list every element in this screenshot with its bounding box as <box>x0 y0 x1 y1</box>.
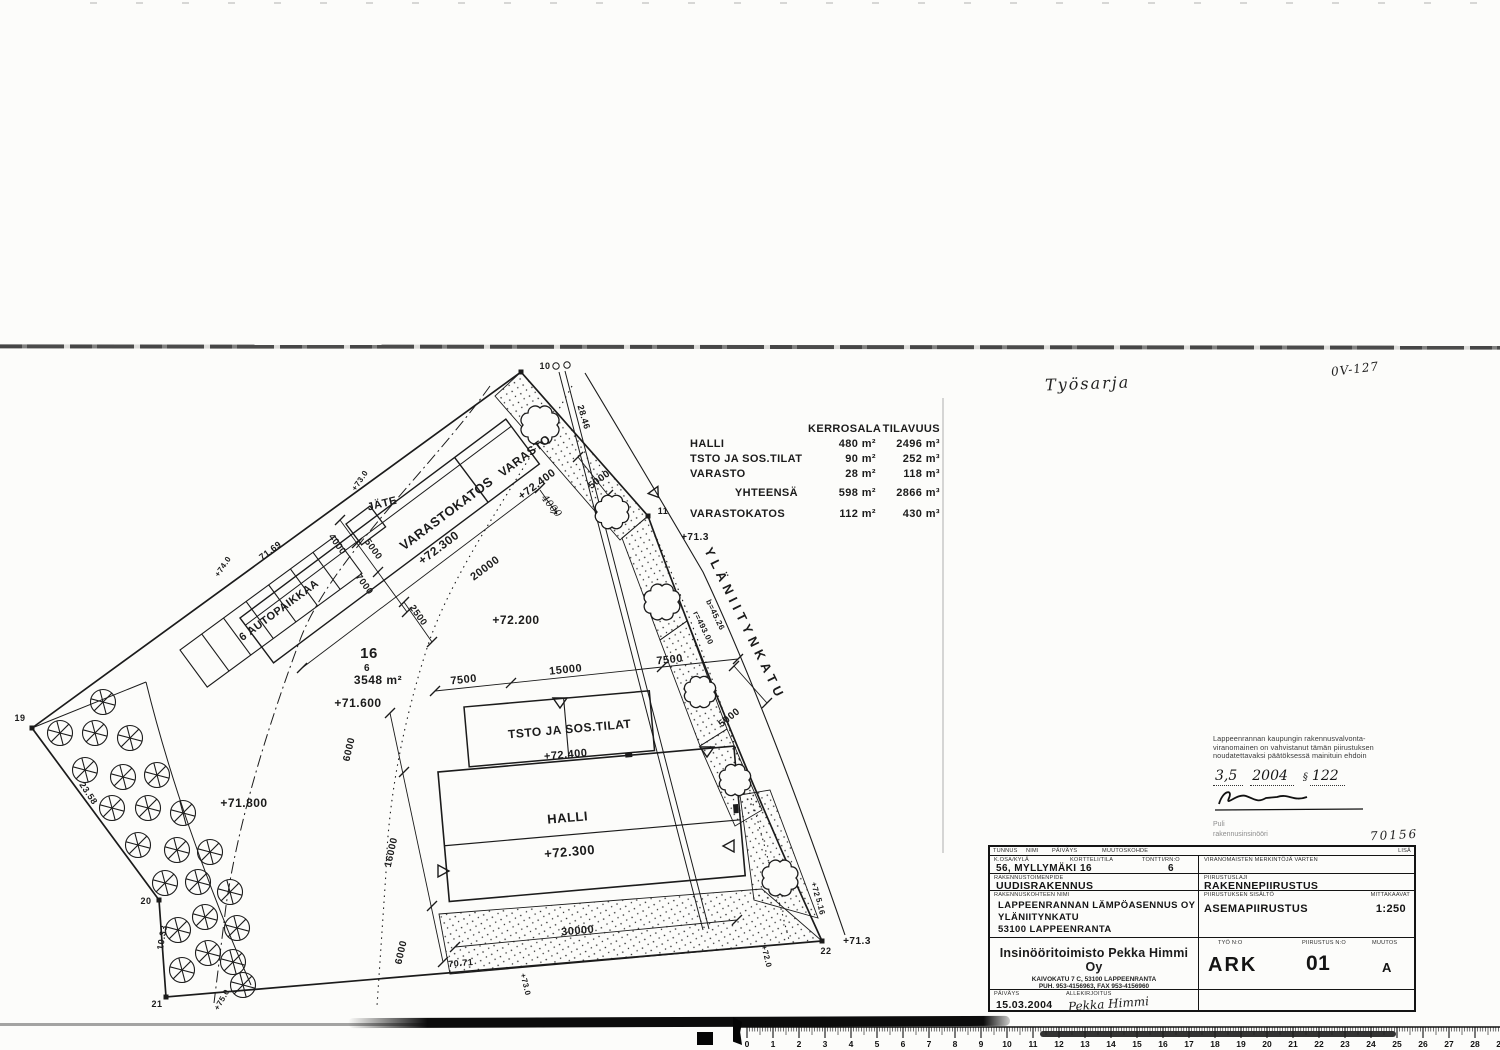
ruler-number: 26 <box>1418 1039 1428 1049</box>
tree-icon <box>221 950 246 975</box>
tyo-label: TYÖ N:O <box>1218 940 1242 946</box>
ruler-number: 16 <box>1158 1039 1168 1049</box>
ruler-number: 12 <box>1054 1039 1064 1049</box>
ruler-number: 28 <box>1470 1039 1480 1049</box>
sisalto-label: PIIRUSTUKSEN SISÄLTÖ <box>1204 892 1274 898</box>
plan-label: 10 <box>539 361 550 371</box>
company-address: KAIVOKATU 7 C, 53100 LAPPEENRANTA <box>990 976 1198 983</box>
kohde-line: LAPPEENRANNAN LÄMPÖASENNUS OY <box>998 900 1195 911</box>
tunnus-label: TUNNUS <box>993 848 1018 854</box>
ruler-number: 7 <box>927 1039 932 1049</box>
col-kerrosala: KERROSALA <box>808 423 876 435</box>
area-table-cell: 430 m³ <box>876 508 940 520</box>
plan-label: 15000 <box>549 662 583 677</box>
stamp-signature <box>1213 784 1373 814</box>
piirustus-value: 01 <box>1306 952 1330 976</box>
ruler-number: 24 <box>1366 1039 1376 1049</box>
tree-icon <box>218 880 243 905</box>
dim-tick <box>399 597 409 607</box>
officer-name: Puli <box>1213 821 1403 829</box>
tontti-label: TONTTI/RN:O <box>1142 857 1180 863</box>
tree-symbols <box>48 690 256 998</box>
tree-icon <box>171 801 196 826</box>
allekirjoitus-label: ALLEKIRJOITUS <box>1066 991 1112 997</box>
plan-label: 3548 m² <box>354 673 402 687</box>
plan-label: +71.3 <box>843 936 871 947</box>
spacer <box>690 423 808 435</box>
plan-label: TSTO JA SOS.TILAT <box>507 717 632 742</box>
paivays-label: PÄIVÄYS <box>994 991 1019 997</box>
scan-mark <box>697 1032 713 1045</box>
title-block-divider <box>1198 856 1199 1010</box>
plan-label: +72.400 <box>544 747 588 763</box>
plan-label: +72 <box>809 881 821 898</box>
kohde-label: RAKENNUSKOHTEEN NIMI <box>994 892 1069 898</box>
tree-icon <box>136 796 161 821</box>
plan-label: 10.33 <box>155 924 169 950</box>
approval-year: 2004 <box>1250 768 1294 786</box>
building-authority-stamp: Lappeenrannan kaupungin rakennusvalvonta… <box>1213 735 1403 839</box>
tree-icon <box>198 840 223 865</box>
plan-label: +72.200 <box>492 613 539 627</box>
plan-label: 20 <box>140 896 151 906</box>
mittakaava-label: MITTAKAAVAT <box>1371 892 1410 898</box>
paivays-col-label: PÄIVÄYS <box>1052 848 1077 854</box>
paivays-value: 15.03.2004 <box>996 999 1053 1011</box>
area-table-cell: VARASTOKATOS <box>690 508 808 520</box>
area-summary-table: KERROSALA TILAVUUS HALLI480 m²2496 m³TST… <box>690 423 940 520</box>
plan-label: 71.69 <box>257 539 283 562</box>
area-table-cell: YHTEENSÄ <box>690 487 808 499</box>
dim-tick <box>297 663 307 673</box>
plan-label: 5000 <box>362 537 385 562</box>
plan-label: 28.46 <box>575 404 592 431</box>
title-block: TUNNUS NIMI PÄIVÄYS MUUTOSKOHDE LISÄ K.O… <box>988 845 1416 1012</box>
area-table-cell: 112 m² <box>808 508 876 520</box>
plan-label: +71.800 <box>220 796 267 810</box>
dim-tick <box>373 567 383 577</box>
ruler-number: 6 <box>901 1039 906 1049</box>
tontti-value: 6 <box>1168 863 1174 874</box>
ruler-number: 17 <box>1184 1039 1194 1049</box>
plan-label: +75.0 <box>212 988 231 1012</box>
ruler-number: 23 <box>1340 1039 1350 1049</box>
plan-label: +71.600 <box>334 696 381 710</box>
action-row: RAKENNUSTOIMENPIDE UUDISRAKENNUS PIIRUST… <box>990 874 1414 891</box>
tree-icon <box>166 918 191 943</box>
lisa-label: LISÄ <box>1398 848 1411 854</box>
stamp-text-line: noudatettavaksi päätöksessä mainituin eh… <box>1213 752 1403 761</box>
plan-label: 20000 <box>468 554 502 583</box>
plan-label: 4000 <box>326 532 349 557</box>
col-tilavuus: TILAVUUS <box>876 423 940 435</box>
company-phone: PUH. 953-4156963, FAX 953-4156960 <box>990 983 1198 990</box>
area-table-cell: 118 m³ <box>876 468 940 480</box>
area-table-row: VARASTO28 m²118 m³ <box>690 468 940 480</box>
tree-icon <box>170 958 195 983</box>
tree-icon <box>193 905 218 930</box>
date-row: PÄIVÄYS 15.03.2004 ALLEKIRJOITUS <box>990 990 1414 1014</box>
tree-icon <box>111 765 136 790</box>
triangle-marker <box>723 840 734 852</box>
nimi-label: NIMI <box>1026 848 1039 854</box>
ruler-number: 18 <box>1210 1039 1220 1049</box>
tree-icon <box>126 833 151 858</box>
tree-icon <box>196 941 221 966</box>
muutoskohde-label: MUUTOSKOHDE <box>1102 848 1148 854</box>
tree-icon <box>73 758 98 783</box>
handwritten-approval-date: 3,52004§122 <box>1213 768 1403 784</box>
officer-title: rakennusinsinööri <box>1213 831 1403 839</box>
plan-label: 22 <box>820 946 831 956</box>
dim-tick <box>335 515 345 525</box>
tree-icon <box>83 721 108 746</box>
dim-tick <box>438 957 448 967</box>
tree-icon <box>91 690 116 715</box>
kohde-line: YLÄNIITYNKATU <box>998 912 1079 923</box>
ruler-number: 5 <box>875 1039 880 1049</box>
plan-label: +72.300 <box>544 842 596 861</box>
plan-label: 16000 <box>383 836 401 868</box>
company-name: Insinööritoimisto Pekka Himmi Oy <box>990 946 1198 974</box>
plan-label: JÄTE <box>366 494 398 514</box>
ruler-number: 29 <box>1496 1039 1500 1049</box>
tree-icon <box>100 796 125 821</box>
scan-smudge <box>1040 1031 1396 1037</box>
halli-building <box>438 743 745 901</box>
plan-label: 19 <box>14 713 25 723</box>
jate-shed <box>346 506 386 545</box>
area-table-cell: 2496 m³ <box>876 438 940 450</box>
approval-day: 3,5 <box>1213 768 1243 786</box>
tree-icon <box>165 838 190 863</box>
area-table-header: KERROSALA TILAVUUS <box>690 423 940 435</box>
plan-label: 21 <box>151 999 162 1009</box>
tree-icon <box>231 973 256 998</box>
door-mark <box>733 804 739 813</box>
area-table-row: VARASTOKATOS112 m²430 m³ <box>690 508 940 520</box>
ruler-number: 21 <box>1288 1039 1298 1049</box>
ruler-number: 13 <box>1080 1039 1090 1049</box>
muutos-value: A <box>1382 960 1392 975</box>
ruler-number: 2 <box>797 1039 802 1049</box>
viranomaiset-label: VIRANOMAISTEN MERKINTÖJÄ VARTEN <box>1204 857 1318 863</box>
ruler-number: 15 <box>1132 1039 1142 1049</box>
ruler-number: 9 <box>979 1039 984 1049</box>
ruler-number: 20 <box>1262 1039 1272 1049</box>
plan-label: +71.3 <box>681 532 709 543</box>
area-table-row: HALLI480 m²2496 m³ <box>690 438 940 450</box>
plan-label: 2500 <box>407 603 430 628</box>
ruler-number: 14 <box>1106 1039 1116 1049</box>
scan-edge-artifact <box>90 2 1480 4</box>
tree-icon <box>186 870 211 895</box>
project-row: RAKENNUSKOHTEEN NIMI LAPPEENRANNAN LÄMPÖ… <box>990 891 1414 938</box>
ruler-number: 25 <box>1392 1039 1402 1049</box>
sisalto-value: ASEMAPIIRUSTUS <box>1204 903 1308 915</box>
area-table-cell: 90 m² <box>808 453 876 465</box>
ruler-number: 8 <box>953 1039 958 1049</box>
area-table-cell: 598 m² <box>808 487 876 499</box>
area-table-cell: 2866 m³ <box>876 487 940 499</box>
ruler-number: 11 <box>1029 1039 1038 1049</box>
ruler-number: 10 <box>1002 1039 1012 1049</box>
tree-icon <box>225 916 250 941</box>
ruler-number: 3 <box>823 1039 828 1049</box>
tree-icon <box>48 721 73 746</box>
ruler-number: 0 <box>745 1039 750 1049</box>
dim-tick <box>385 708 395 718</box>
ruler-number: 22 <box>1314 1039 1324 1049</box>
plan-label: 7500 <box>450 673 478 688</box>
plan-label: +73.0 <box>518 972 532 996</box>
kosa-value: 56, MYLLYMÄKI <box>996 863 1076 874</box>
plan-label: HALLI <box>547 808 589 826</box>
area-table-cell: 480 m² <box>808 438 876 450</box>
ruler-number: 1 <box>771 1039 776 1049</box>
approval-number: 122 <box>1310 768 1345 786</box>
area-table-cell: HALLI <box>690 438 808 450</box>
mittakaava-value: 1:250 <box>1376 903 1406 915</box>
area-table-row: YHTEENSÄ598 m²2866 m³ <box>690 487 940 499</box>
ruler-number: 4 <box>849 1039 854 1049</box>
plan-label: YLÄNIITYNKATU <box>701 545 788 703</box>
area-table-row: TSTO JA SOS.TILAT90 m²252 m³ <box>690 453 940 465</box>
ruler-number: 27 <box>1444 1039 1454 1049</box>
engineering-office: Insinööritoimisto Pekka Himmi Oy KAIVOKA… <box>990 938 1198 990</box>
plan-label: 7000 <box>353 572 376 597</box>
dim-tick <box>399 767 409 777</box>
area-table-cell: VARASTO <box>690 468 808 480</box>
dim-tick <box>427 637 437 647</box>
handwritten-series-note: Työsarja <box>1045 373 1131 395</box>
kohde-line: 53100 LAPPEENRANTA <box>998 924 1112 935</box>
paragraph-mark: § <box>1301 772 1308 783</box>
title-block-header-row: TUNNUS NIMI PÄIVÄYS MUUTOSKOHDE LISÄ <box>990 847 1414 856</box>
tree-icon <box>118 726 143 751</box>
nabla-marker <box>648 486 663 500</box>
muutos-label: MUUTOS <box>1372 940 1397 946</box>
area-table-cell: 28 m² <box>808 468 876 480</box>
tree-icon <box>145 763 170 788</box>
plan-label: +74.0 <box>213 555 233 579</box>
plan-label: 16 <box>360 645 378 662</box>
lot-row: K.OSA/KYLÄ 56, MYLLYMÄKI KORTTELI/TILA 1… <box>990 856 1414 874</box>
kortteli-value: 16 <box>1080 863 1092 874</box>
area-table-cell: TSTO JA SOS.TILAT <box>690 453 808 465</box>
plan-label: +72.0 <box>759 944 773 968</box>
tyo-value: ARK <box>1208 954 1257 977</box>
plan-label: 6000 <box>341 736 357 762</box>
tree-icon <box>153 871 178 896</box>
scanned-site-plan-page: VARASTO+72.400VARASTOKATOS+72.30020000JÄ… <box>0 0 1500 1050</box>
door-mark <box>625 752 632 758</box>
plan-label: 11 <box>658 506 669 516</box>
plan-label: 6000 <box>393 939 409 965</box>
area-table-cell: 252 m³ <box>876 453 940 465</box>
piirustus-label: PIIRUSTUS N:O <box>1302 940 1346 946</box>
ruler-number: 19 <box>1236 1039 1246 1049</box>
